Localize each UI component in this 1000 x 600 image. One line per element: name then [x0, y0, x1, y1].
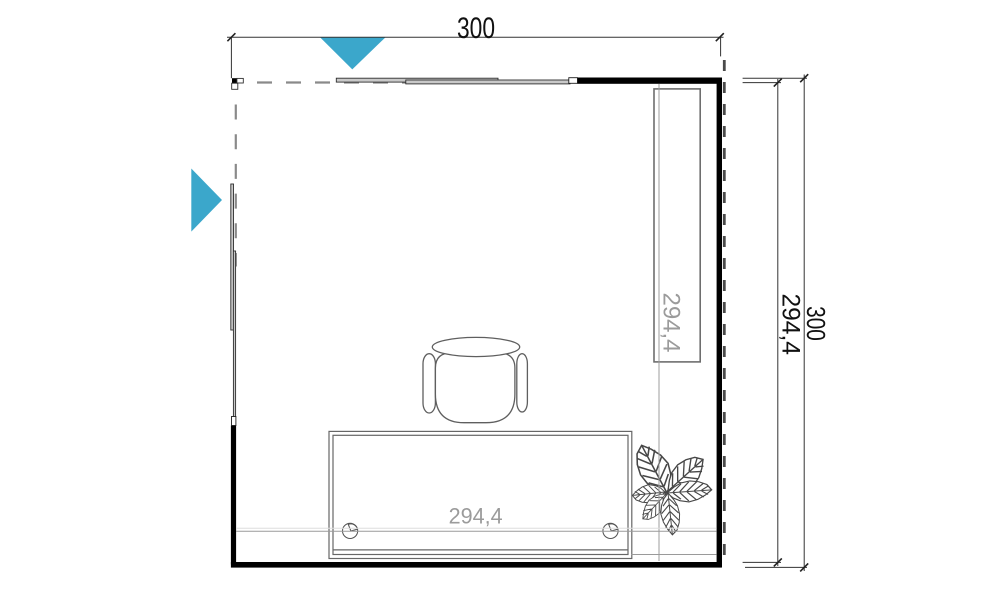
- svg-text:294,4: 294,4: [658, 293, 685, 353]
- svg-text:294,4: 294,4: [776, 293, 804, 355]
- svg-text:300: 300: [801, 306, 831, 341]
- svg-text:294,4: 294,4: [449, 504, 503, 529]
- svg-text:300: 300: [457, 12, 495, 45]
